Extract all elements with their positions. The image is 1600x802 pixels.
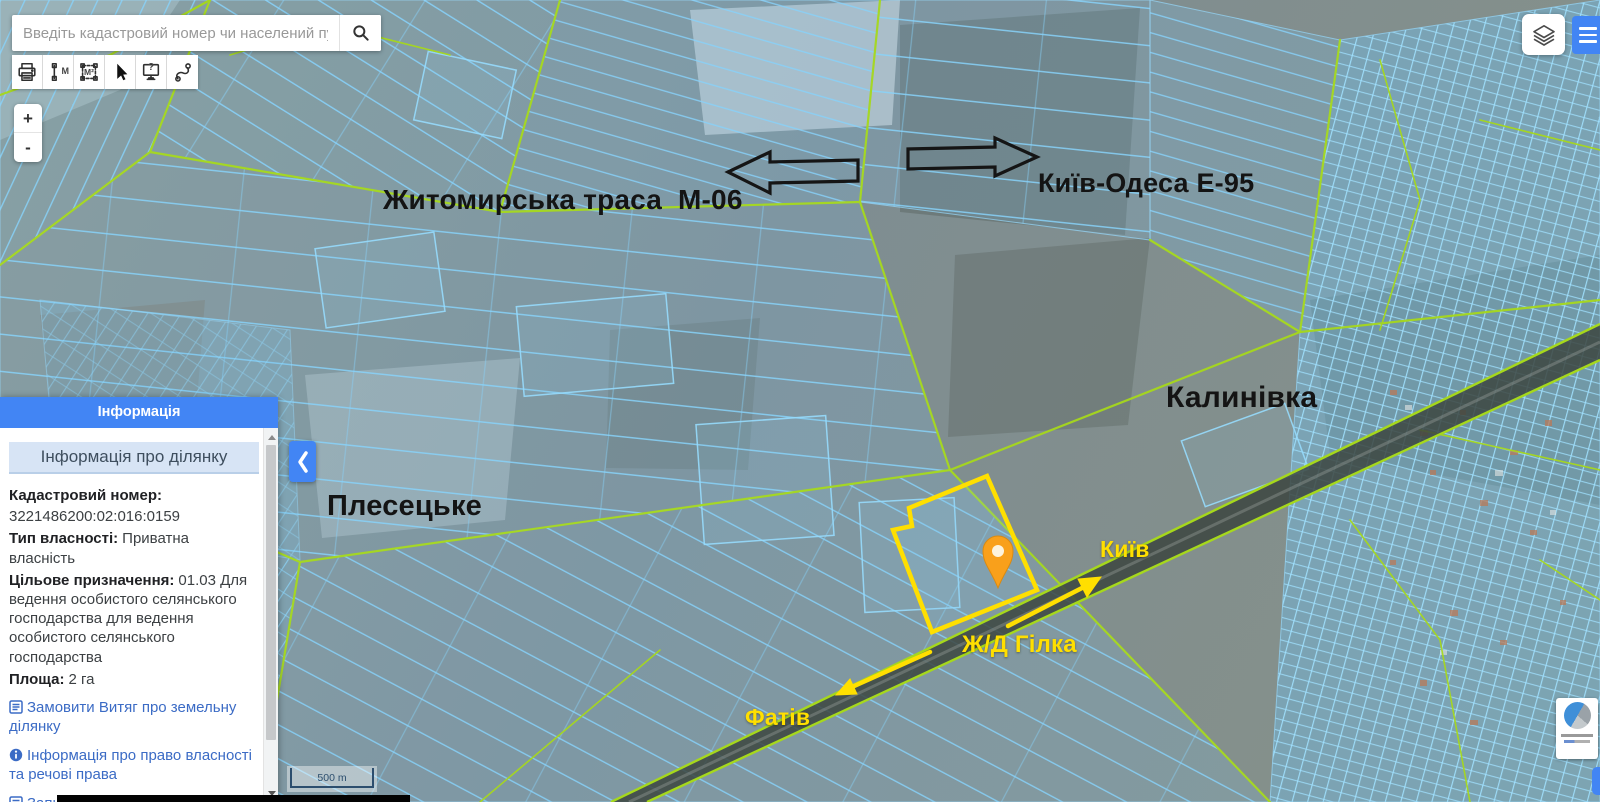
- label-railway-branch: Ж/Д Гілка: [962, 633, 1077, 657]
- layers-button[interactable]: [1522, 14, 1565, 55]
- layers-icon: [1529, 20, 1559, 50]
- search-icon: [351, 23, 371, 43]
- field-area: Площа:2 га: [9, 670, 259, 689]
- scroll-up-icon[interactable]: [264, 430, 279, 444]
- printer-icon: [16, 61, 38, 83]
- info-panel-title[interactable]: Інформація: [0, 397, 278, 428]
- scrollbar-thumb[interactable]: [266, 445, 276, 740]
- info-icon: [9, 748, 23, 762]
- field-purpose: Цільове призначення:01.03 Для ведення ос…: [9, 571, 259, 667]
- hamburger-icon: [1579, 27, 1597, 30]
- cursor-icon: [109, 61, 131, 83]
- privacy-badge[interactable]: [1556, 698, 1598, 759]
- measure-length-icon: [47, 61, 69, 83]
- print-button[interactable]: [12, 55, 43, 89]
- bottom-black-strip: [57, 795, 410, 802]
- section-title-parcel-info: Інформація про ділянку: [9, 442, 259, 474]
- info-panel: Інформація Інформація про ділянку Кадаст…: [0, 397, 278, 802]
- chevron-left-icon: [295, 449, 311, 475]
- route-icon: [172, 61, 194, 83]
- zoom-controls: + -: [14, 104, 42, 162]
- menu-button[interactable]: [1572, 16, 1600, 54]
- label-kyiv-odesa: Київ-Одеса Е-95: [1038, 170, 1254, 197]
- map-toolbar: M М² ?: [12, 55, 198, 89]
- zoom-out-button[interactable]: -: [14, 133, 42, 162]
- label-zhytomyr-route: Житомирська траса М-06: [383, 186, 743, 214]
- field-cadastral-number: Кадастровий номер:3221486200:02:016:0159: [9, 486, 259, 526]
- label-kyiv: Київ: [1100, 538, 1150, 561]
- search-bar: [12, 15, 381, 51]
- label-plesetske: Плесецьке: [327, 492, 482, 521]
- zoom-in-button[interactable]: +: [14, 104, 42, 133]
- chat-widget-cut[interactable]: [1592, 767, 1600, 795]
- identify-button[interactable]: ?: [136, 55, 167, 89]
- document-icon: [9, 796, 23, 802]
- privacy-badge-logo-icon: [1564, 702, 1591, 729]
- cadastral-map-app: Житомирська траса М-06 Київ-Одеса Е-95 К…: [0, 0, 1600, 802]
- route-button[interactable]: [167, 55, 198, 89]
- info-panel-body: Інформація про ділянку Кадастровий номер…: [0, 428, 263, 802]
- measure-length-button[interactable]: M: [43, 55, 74, 89]
- field-ownership-type: Тип власності:Приватна власність: [9, 529, 259, 567]
- label-fativ: Фатів: [745, 706, 810, 729]
- link-ownership-rights[interactable]: Інформація про право власності та речові…: [9, 746, 259, 785]
- select-cursor-button[interactable]: [105, 55, 136, 89]
- document-icon: [9, 700, 23, 714]
- measure-area-icon: [78, 61, 100, 83]
- measure-area-button[interactable]: М²: [74, 55, 105, 89]
- panel-collapse-button[interactable]: [289, 441, 316, 482]
- identify-monitor-icon: [140, 61, 162, 83]
- search-input[interactable]: [12, 15, 339, 51]
- label-kalynivka: Калинівка: [1166, 383, 1317, 413]
- scale-bracket: 500 m: [290, 768, 374, 788]
- link-order-extract[interactable]: Замовити Витяг про земельну ділянку: [9, 698, 259, 737]
- search-button[interactable]: [339, 15, 381, 51]
- scale-bar: 500 m: [287, 766, 377, 792]
- scale-label: 500 m: [317, 771, 346, 786]
- panel-scrollbar[interactable]: [263, 428, 278, 802]
